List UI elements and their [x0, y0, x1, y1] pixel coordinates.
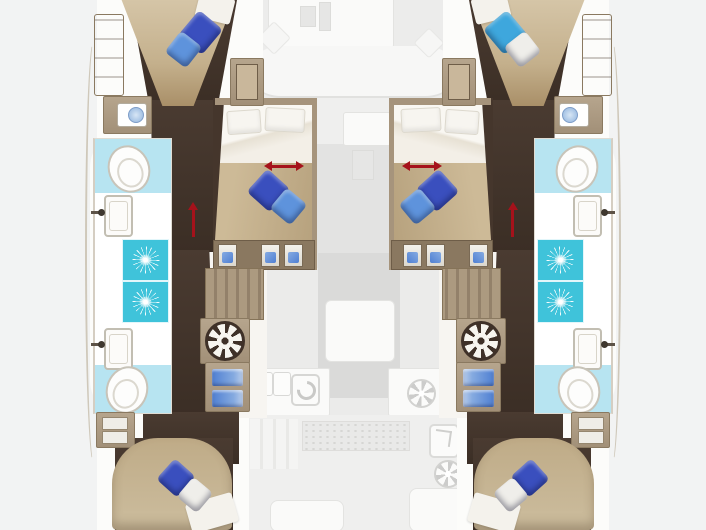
- stored-item: [222, 252, 233, 263]
- companionway-stairs: [205, 268, 264, 320]
- cabinet-slot: [578, 431, 604, 444]
- cabinet-slot: [102, 417, 128, 430]
- cabinet-slot: [102, 431, 128, 444]
- aft-cabin-bed: [112, 438, 232, 530]
- pillow: [226, 109, 262, 135]
- vanity-cabinet: [554, 96, 603, 134]
- faucet-icon: [603, 343, 615, 346]
- stored-item: [288, 252, 299, 263]
- sink: [104, 195, 133, 237]
- boat-floor-plan: [0, 0, 706, 530]
- vanity-cabinet: [103, 96, 152, 134]
- aft-cabin-bed: [474, 438, 594, 530]
- wardrobe-door: [236, 64, 258, 100]
- mid-cabin-double-bed: [394, 105, 491, 240]
- saloon-hatch: [352, 150, 374, 180]
- aft-cabinet: [96, 412, 135, 448]
- wall: [391, 98, 491, 105]
- pillow: [264, 107, 305, 133]
- shower: [122, 239, 169, 281]
- wardrobe: [442, 58, 476, 106]
- bed-slide-arrow: [267, 165, 301, 168]
- stored-item: [430, 252, 441, 263]
- drawer-item: [212, 369, 243, 386]
- storage-cubbies: [391, 240, 493, 270]
- washer-cabinet: [200, 318, 250, 364]
- companionway-stairs: [442, 268, 501, 320]
- washer-cabinet: [456, 318, 506, 364]
- starboard-hull: [389, 0, 621, 530]
- stored-item: [473, 252, 484, 263]
- vanity-sink-icon: [117, 103, 147, 127]
- cubby-slot: [218, 244, 237, 267]
- stored-item: [265, 252, 276, 263]
- sink: [104, 328, 133, 370]
- cubby-slot: [261, 244, 280, 267]
- hull-side-cabinet: [582, 14, 612, 96]
- wardrobe-door: [448, 64, 470, 100]
- saloon-table: [325, 300, 395, 362]
- shower-head-icon: [132, 247, 159, 274]
- entry-arrow: [511, 205, 514, 237]
- drawer-item: [463, 369, 494, 386]
- pillow: [400, 107, 441, 133]
- stored-item: [407, 252, 418, 263]
- cubby-slot: [469, 244, 488, 267]
- washing-machine-icon: [205, 321, 245, 361]
- shower-head-icon: [132, 289, 159, 316]
- drawer-item: [212, 390, 243, 407]
- shower-head-icon: [547, 289, 574, 316]
- sink: [573, 328, 602, 370]
- faucet-icon: [603, 211, 615, 214]
- storage-cubbies: [213, 240, 315, 270]
- bed-slide-arrow: [405, 165, 439, 168]
- pillow: [444, 109, 480, 135]
- shower-head-icon: [547, 247, 574, 274]
- mid-cabin-double-bed: [215, 105, 312, 240]
- linen-drawers: [456, 362, 501, 412]
- sink: [573, 195, 602, 237]
- washing-machine-icon: [461, 321, 501, 361]
- shower: [537, 239, 584, 281]
- faucet-icon: [91, 211, 103, 214]
- entry-arrow: [192, 205, 195, 237]
- drawer-item: [463, 390, 494, 407]
- aft-cabinet: [571, 412, 610, 448]
- hull-side-cabinet: [94, 14, 124, 96]
- cubby-slot: [284, 244, 303, 267]
- cubby-slot: [426, 244, 445, 267]
- cubby-slot: [403, 244, 422, 267]
- shower: [537, 281, 584, 323]
- shower: [122, 281, 169, 323]
- vanity-sink-icon: [559, 103, 589, 127]
- port-hull: [85, 0, 317, 530]
- foredeck-hatch: [319, 2, 331, 31]
- wardrobe: [230, 58, 264, 106]
- bathroom-block: [93, 138, 172, 414]
- cabinet-slot: [578, 417, 604, 430]
- linen-drawers: [205, 362, 250, 412]
- saloon-hatch: [343, 112, 391, 146]
- faucet-icon: [91, 343, 103, 346]
- bathroom-block: [534, 138, 613, 414]
